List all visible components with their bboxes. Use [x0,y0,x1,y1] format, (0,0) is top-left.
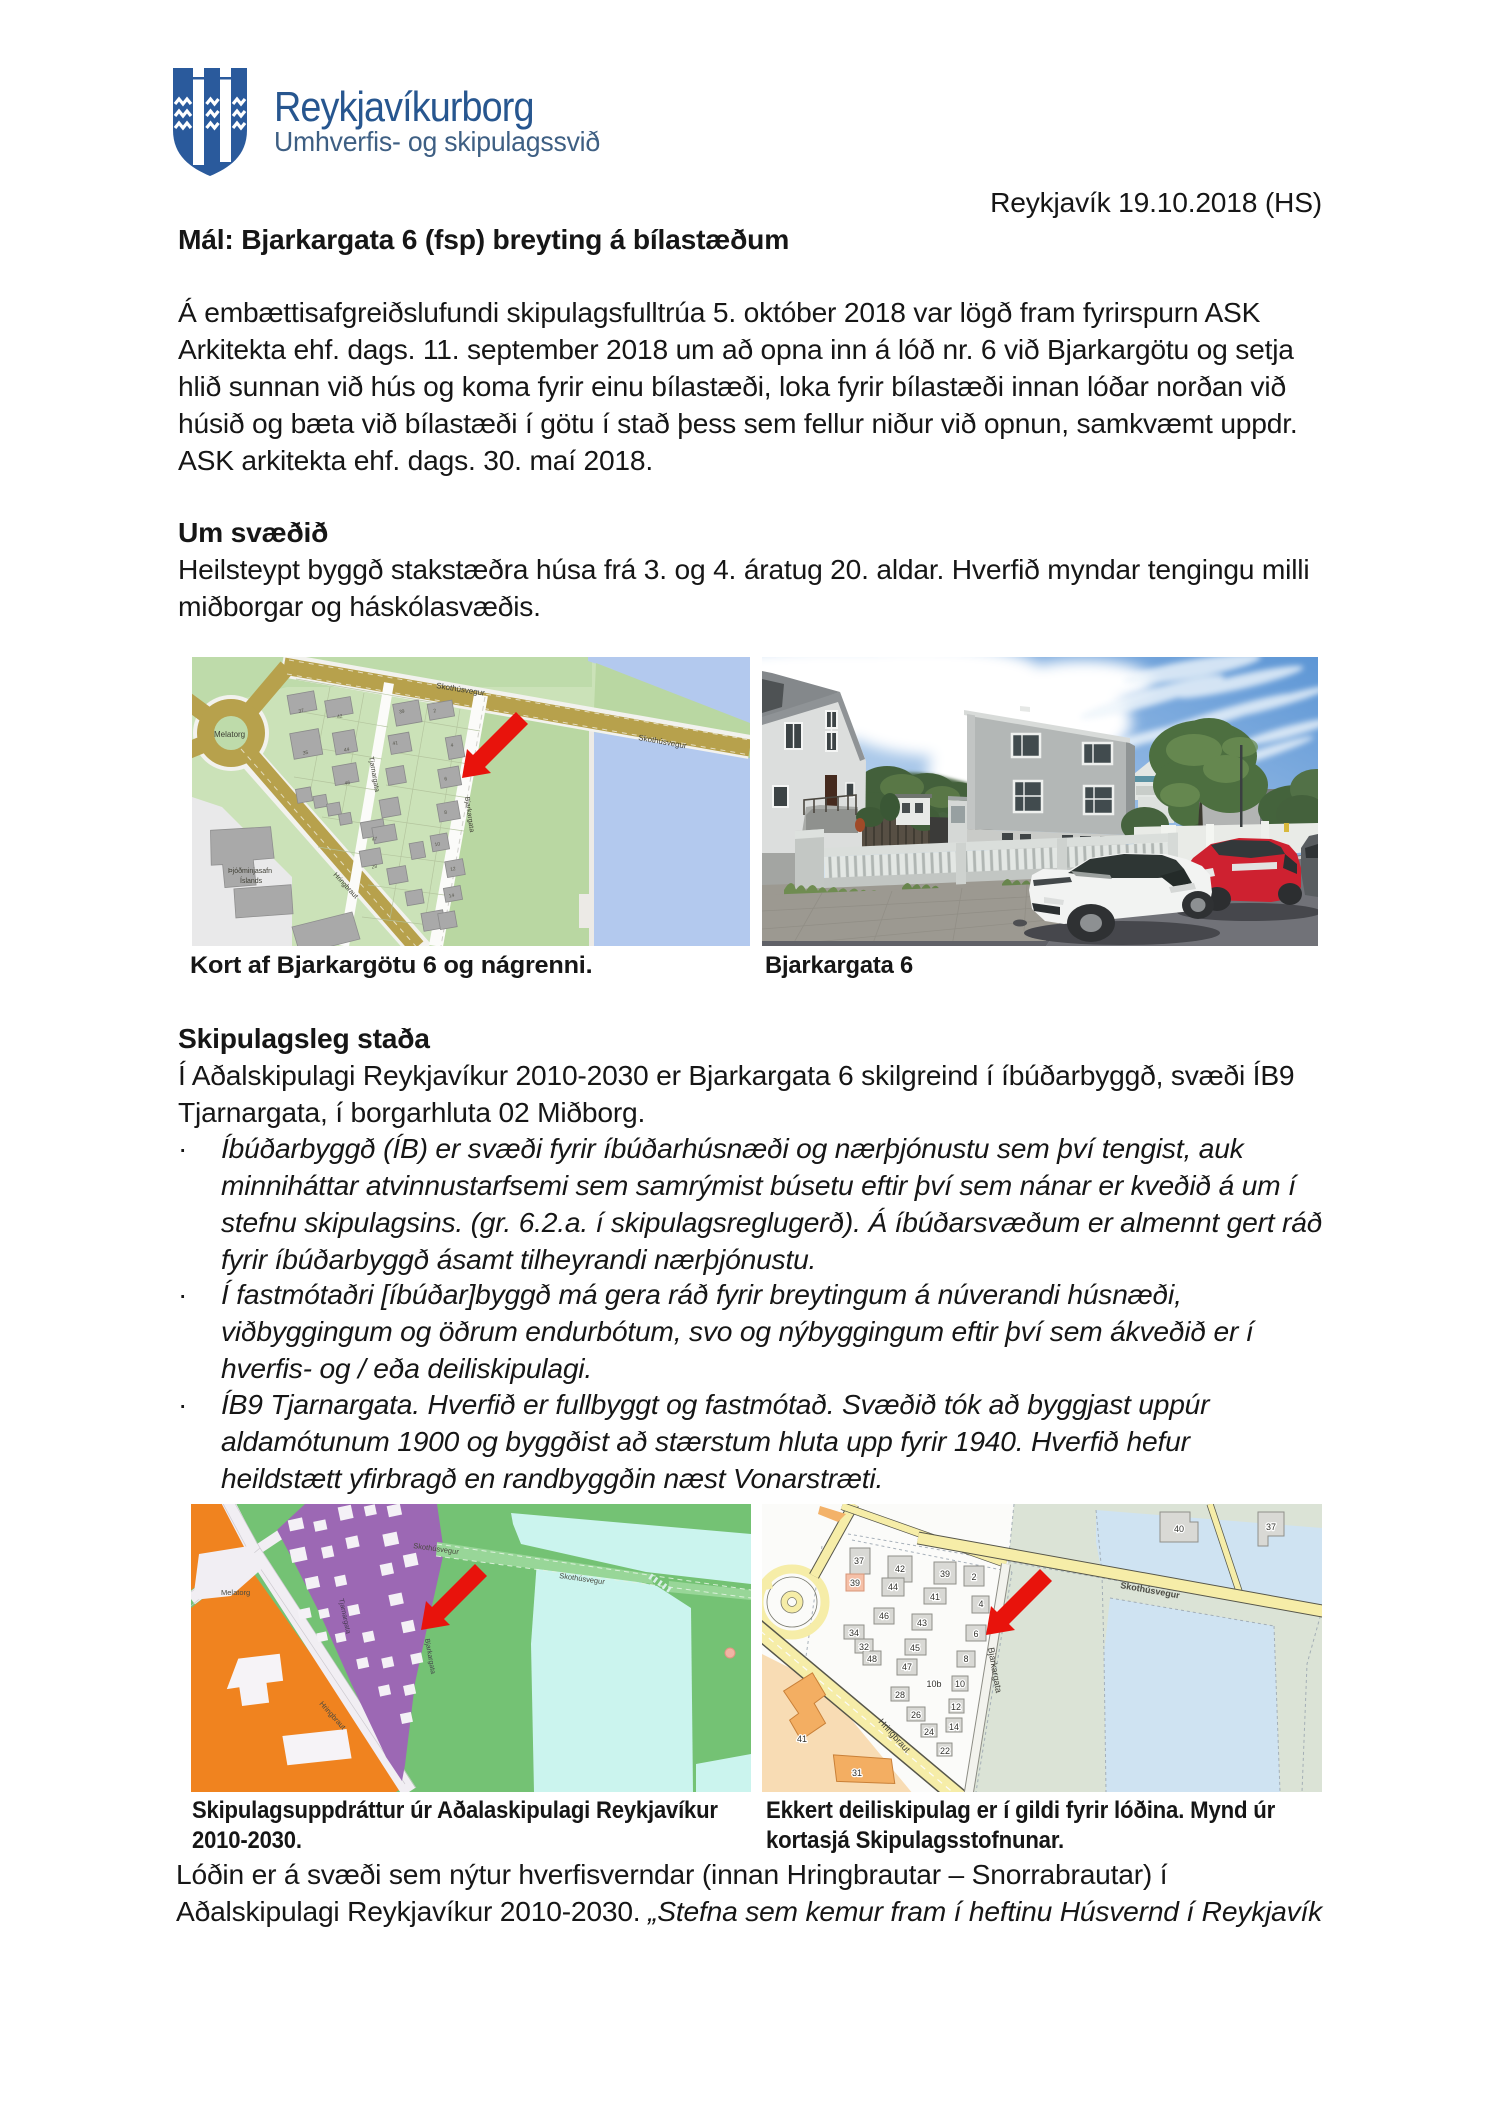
svg-text:Melatorg: Melatorg [221,1588,250,1597]
svg-text:46: 46 [879,1611,889,1621]
svg-text:12: 12 [951,1702,961,1712]
svg-text:10: 10 [955,1679,965,1689]
svg-text:28: 28 [895,1690,905,1700]
svg-text:Íslands: Íslands [240,876,263,885]
svg-text:Þjóðminjasafn: Þjóðminjasafn [228,867,272,875]
svg-text:37: 37 [1266,1522,1276,1532]
svg-text:37: 37 [854,1556,864,1566]
svg-text:41: 41 [930,1592,940,1602]
svg-text:40: 40 [1174,1524,1184,1534]
svg-text:43: 43 [917,1618,927,1628]
svg-text:42: 42 [895,1564,905,1574]
svg-text:8: 8 [963,1654,968,1664]
svg-text:2: 2 [971,1572,976,1582]
svg-text:34: 34 [849,1628,859,1638]
svg-text:47: 47 [902,1662,912,1672]
svg-text:10b: 10b [926,1679,941,1689]
svg-text:4: 4 [978,1599,983,1609]
svg-text:24: 24 [924,1727,934,1737]
svg-text:41: 41 [797,1734,807,1744]
svg-text:39: 39 [940,1569,950,1579]
svg-text:31: 31 [852,1768,862,1778]
svg-text:45: 45 [910,1643,920,1653]
svg-text:22: 22 [940,1746,950,1756]
svg-text:44: 44 [888,1582,898,1592]
svg-text:Melatorg: Melatorg [214,730,245,739]
svg-text:32: 32 [859,1642,869,1652]
svg-text:26: 26 [911,1710,921,1720]
svg-text:6: 6 [973,1629,978,1639]
svg-text:39: 39 [850,1578,860,1588]
svg-text:14: 14 [949,1722,959,1732]
svg-text:48: 48 [867,1654,877,1664]
